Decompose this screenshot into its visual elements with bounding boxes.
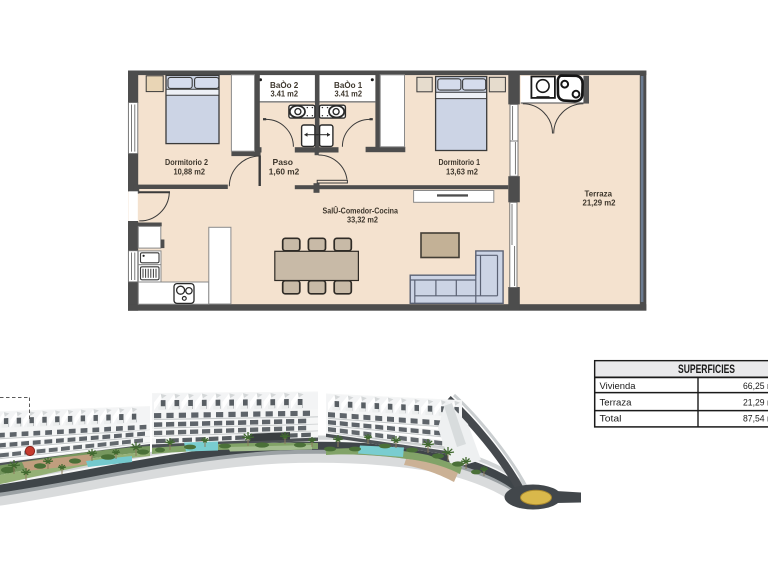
svg-text:3.41 m2: 3.41 m2 bbox=[271, 89, 299, 99]
svg-text:Total: Total bbox=[600, 414, 622, 424]
svg-text:1,60 m2: 1,60 m2 bbox=[269, 167, 300, 177]
svg-text:21,29 m2: 21,29 m2 bbox=[743, 398, 768, 408]
svg-text:33,32 m2: 33,32 m2 bbox=[347, 214, 378, 224]
svg-text:66,25 m2: 66,25 m2 bbox=[743, 381, 768, 391]
svg-text:Terraza: Terraza bbox=[600, 398, 632, 408]
svg-text:21,29 m2: 21,29 m2 bbox=[583, 197, 616, 207]
svg-text:13,63 m2: 13,63 m2 bbox=[446, 167, 478, 177]
svg-text:3.41 m2: 3.41 m2 bbox=[335, 89, 363, 99]
svg-text:10,88 m2: 10,88 m2 bbox=[174, 167, 206, 177]
svg-text:87,54 m2: 87,54 m2 bbox=[743, 414, 768, 424]
svg-text:SUPERFICIES: SUPERFICIES bbox=[678, 364, 735, 376]
svg-text:Vivienda: Vivienda bbox=[600, 381, 636, 391]
